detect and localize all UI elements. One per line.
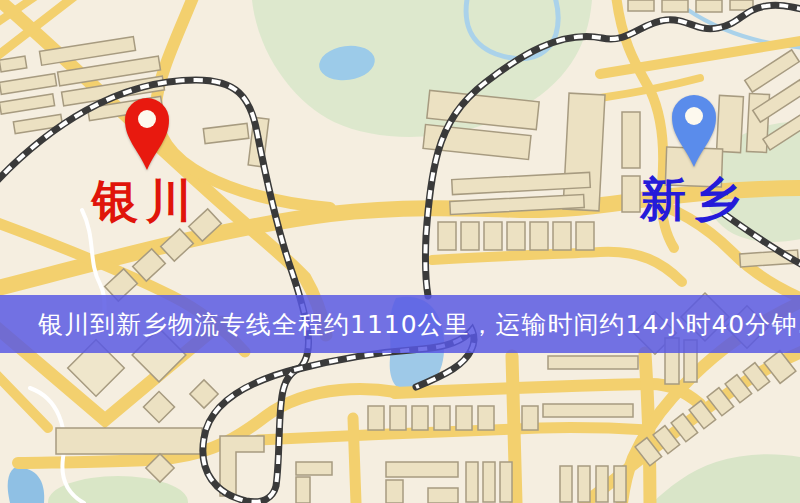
origin-pin-icon[interactable] <box>123 96 171 172</box>
origin-pin-hole <box>138 110 156 128</box>
destination-pin-shape <box>672 95 716 167</box>
route-info-banner: 银川到新乡物流专线全程约1110公里，运输时间约14小时40分钟. <box>0 295 800 353</box>
destination-city-label: 新乡 <box>640 176 748 222</box>
origin-city-label: 银川 <box>92 178 200 224</box>
destination-pin-icon[interactable] <box>670 93 718 169</box>
destination-pin-hole <box>685 107 703 125</box>
route-info-text: 银川到新乡物流专线全程约1110公里，运输时间约14小时40分钟. <box>0 308 800 341</box>
map-view: 银川 新乡 银川到新乡物流专线全程约1110公里，运输时间约14小时40分钟. <box>0 0 800 503</box>
map-background <box>0 0 800 503</box>
origin-pin-shape <box>125 98 169 170</box>
